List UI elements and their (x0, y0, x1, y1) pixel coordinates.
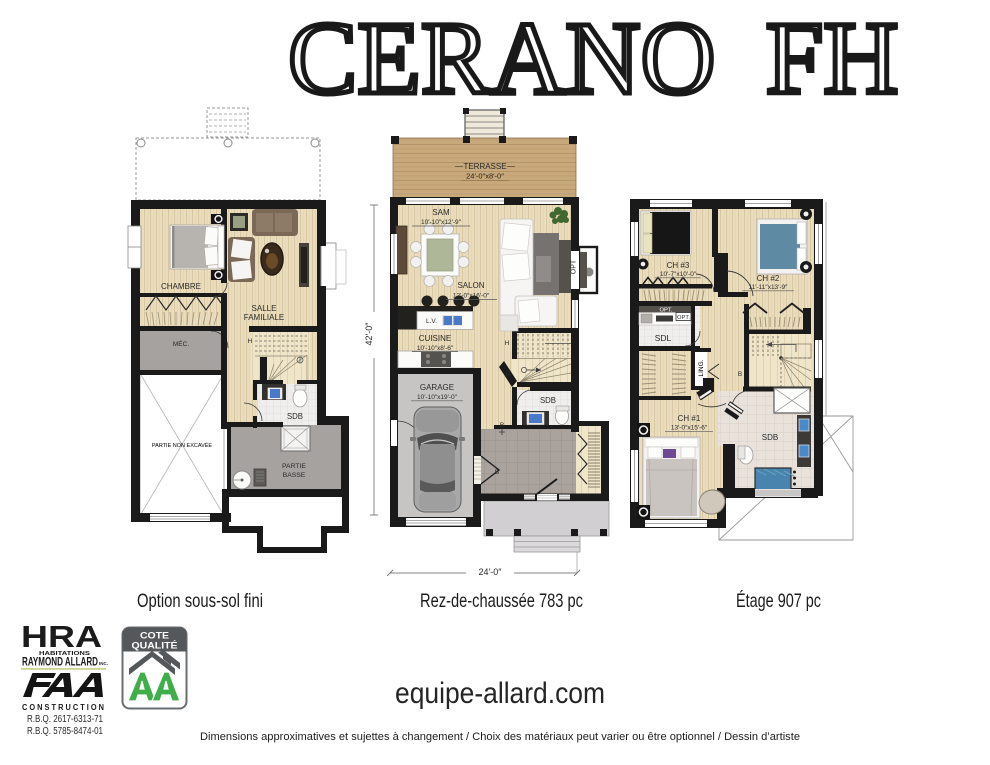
svg-text:SDL: SDL (655, 333, 672, 343)
svg-text:BASSE: BASSE (283, 472, 306, 479)
svg-text:11′-11″x13′-9″: 11′-11″x13′-9″ (749, 284, 789, 291)
svg-text:R.B.Q. 2617-6313-71: R.B.Q. 2617-6313-71 (27, 714, 103, 725)
svg-text:Dimensions approximatives et s: Dimensions approximatives et sujettes à … (200, 731, 800, 743)
svg-text:QUALITÉ: QUALITÉ (132, 640, 178, 651)
svg-text:B: B (495, 469, 499, 476)
svg-text:12′-0″x16′-0″: 12′-0″x16′-0″ (453, 293, 490, 300)
svg-text:INC.: INC. (99, 661, 108, 666)
svg-text:SDB: SDB (762, 433, 778, 442)
svg-text:H: H (248, 338, 253, 345)
svg-text:COTE: COTE (140, 631, 169, 641)
svg-text:SDB: SDB (540, 396, 556, 405)
svg-text:OPT: OPT (571, 259, 578, 274)
svg-text:10′-10″x19′-0″: 10′-10″x19′-0″ (417, 394, 458, 401)
svg-text:42′-0″: 42′-0″ (364, 322, 374, 346)
svg-text:HRA: HRA (21, 619, 102, 654)
svg-text:CERANOFH: CERANOFH (288, 1, 899, 116)
svg-text:equipe-allard.com: equipe-allard.com (395, 677, 605, 710)
svg-text:RAYMOND ALLARD: RAYMOND ALLARD (22, 655, 98, 669)
svg-text:LING.: LING. (698, 359, 705, 376)
svg-text:13′-0″x15′-6″: 13′-0″x15′-6″ (671, 425, 708, 432)
svg-text:CHAMBRE: CHAMBRE (161, 282, 201, 291)
svg-text:L.V.: L.V. (426, 318, 437, 325)
svg-text:CH #3: CH #3 (667, 261, 690, 270)
svg-text:CUISINE: CUISINE (419, 334, 451, 343)
svg-text:10′-10″x12′-9″: 10′-10″x12′-9″ (421, 219, 462, 226)
svg-text:Rez-de-chaussée 783 pc: Rez-de-chaussée 783 pc (420, 590, 583, 612)
svg-text:PARTIE: PARTIE (282, 463, 306, 470)
svg-text:SALON: SALON (457, 281, 484, 290)
svg-text:SDB: SDB (287, 412, 303, 421)
svg-text:10′-7″x10′-0″: 10′-7″x10′-0″ (660, 271, 697, 278)
svg-text:B: B (738, 371, 742, 378)
svg-text:GARAGE: GARAGE (420, 383, 454, 392)
svg-text:CH #1: CH #1 (678, 414, 701, 423)
svg-text:B: B (506, 371, 510, 378)
svg-text:H: H (505, 340, 510, 347)
svg-text:Étage 907 pc: Étage 907 pc (736, 589, 821, 612)
svg-text:Option sous-sol fini: Option sous-sol fini (137, 590, 263, 612)
svg-text:FAMILIALE: FAMILIALE (244, 313, 284, 322)
svg-text:OPT.: OPT. (677, 315, 690, 321)
svg-text:24′-0″: 24′-0″ (479, 567, 503, 577)
svg-text:24′-0″x8′-0″: 24′-0″x8′-0″ (466, 172, 504, 181)
svg-text:R.B.Q. 5785-8474-01: R.B.Q. 5785-8474-01 (27, 726, 103, 737)
svg-text:SAM: SAM (432, 208, 450, 217)
svg-text:C O N S T R U C T I O N: C O N S T R U C T I O N (22, 703, 104, 712)
svg-text:B: B (500, 422, 504, 429)
svg-text:SALLE: SALLE (252, 304, 277, 313)
svg-text:TERRASSE: TERRASSE (463, 162, 506, 171)
svg-text:PARTIE NON EXCAVÉE: PARTIE NON EXCAVÉE (152, 442, 213, 449)
svg-text:MÉC.: MÉC. (173, 339, 189, 348)
svg-text:CH #2: CH #2 (757, 274, 780, 283)
svg-text:10′-10″x8′-6″: 10′-10″x8′-6″ (417, 345, 454, 352)
